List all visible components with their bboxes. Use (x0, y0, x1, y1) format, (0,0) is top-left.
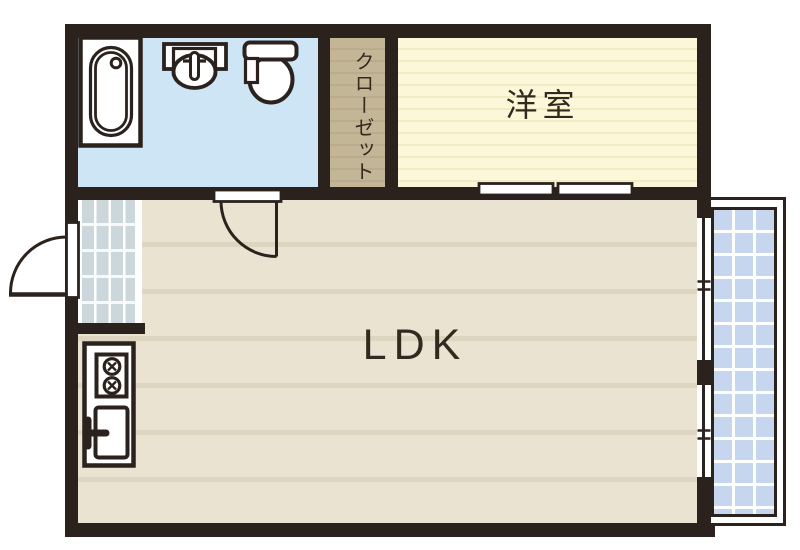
floor-plan: LDK 洋室 クローゼット (0, 0, 800, 550)
ldk-label: LDK (340, 324, 490, 367)
washbasin-icon (164, 44, 226, 88)
entrance-door-icon (9, 223, 79, 298)
toilet-icon (245, 43, 297, 103)
window-icon (697, 218, 711, 477)
closet-label: クローゼット (344, 46, 372, 188)
interior-door-icon (214, 190, 281, 257)
sliding-door-icon (479, 184, 632, 196)
bathtub-icon (81, 38, 141, 146)
stove-icon (97, 355, 127, 397)
western-room-label: 洋室 (470, 89, 615, 121)
fixtures-layer (0, 0, 800, 550)
kitchen-unit-icon (85, 344, 134, 466)
